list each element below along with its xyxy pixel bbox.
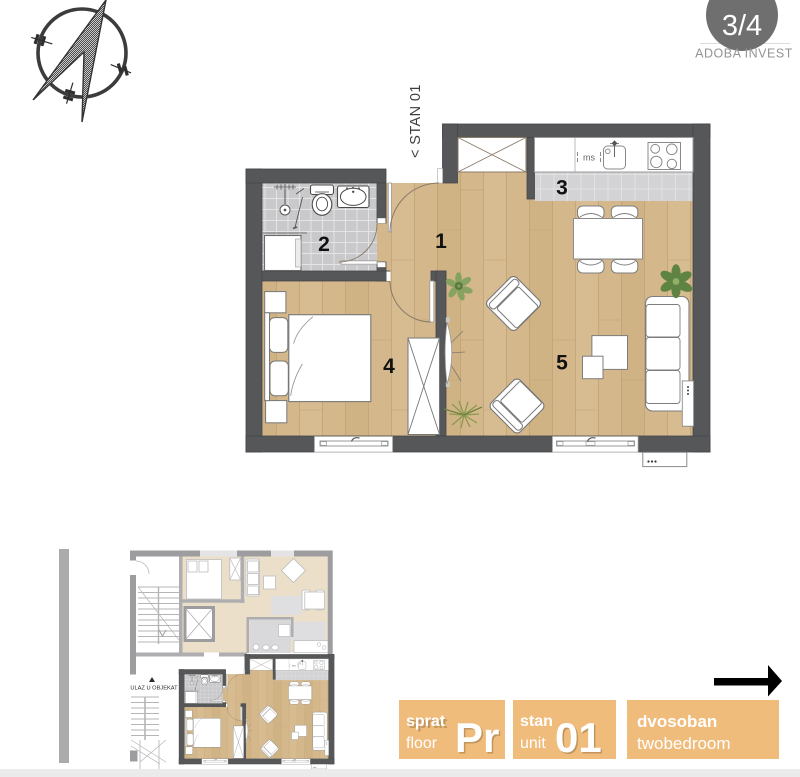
svg-text:5: 5: [556, 352, 568, 375]
svg-text:3/4: 3/4: [722, 10, 762, 42]
svg-text:floor: floor: [406, 735, 438, 752]
svg-text:1: 1: [435, 230, 447, 253]
svg-text:sprat: sprat: [406, 713, 446, 730]
svg-text:3: 3: [556, 177, 568, 200]
svg-text:ADOBA INVEST: ADOBA INVEST: [695, 47, 793, 61]
svg-text:2: 2: [318, 233, 330, 256]
svg-text:stan: stan: [520, 713, 553, 730]
svg-text:dvosoban: dvosoban: [637, 712, 717, 731]
svg-text:ULAZ U OBJEKAT: ULAZ U OBJEKAT: [130, 686, 178, 692]
svg-text:unit: unit: [520, 735, 546, 752]
svg-text:Pr: Pr: [455, 714, 499, 761]
svg-text:01: 01: [555, 714, 602, 761]
svg-text:twobedroom: twobedroom: [637, 734, 731, 753]
svg-text:4: 4: [383, 355, 395, 378]
svg-text:< STAN 01: < STAN 01: [408, 84, 424, 158]
